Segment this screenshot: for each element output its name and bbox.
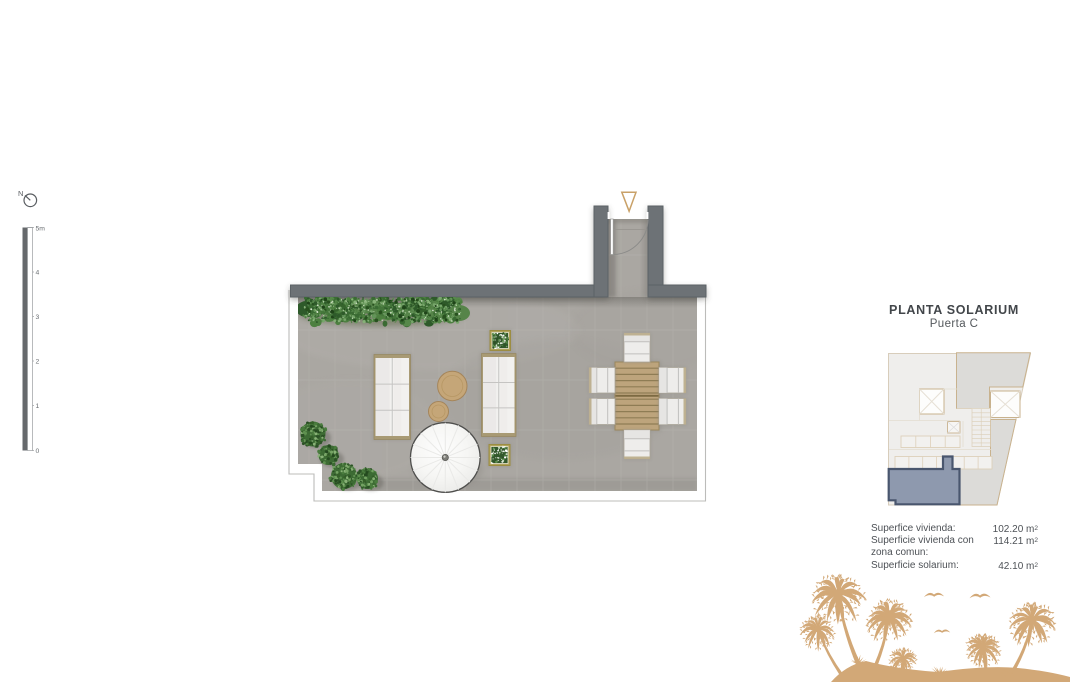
- svg-text:5m: 5m: [36, 226, 46, 233]
- svg-text:4: 4: [36, 270, 40, 277]
- svg-text:N: N: [18, 189, 23, 198]
- svg-text:1: 1: [36, 403, 40, 410]
- svg-text:0: 0: [36, 448, 40, 455]
- svg-text:3: 3: [36, 314, 40, 321]
- svg-text:2: 2: [36, 359, 40, 366]
